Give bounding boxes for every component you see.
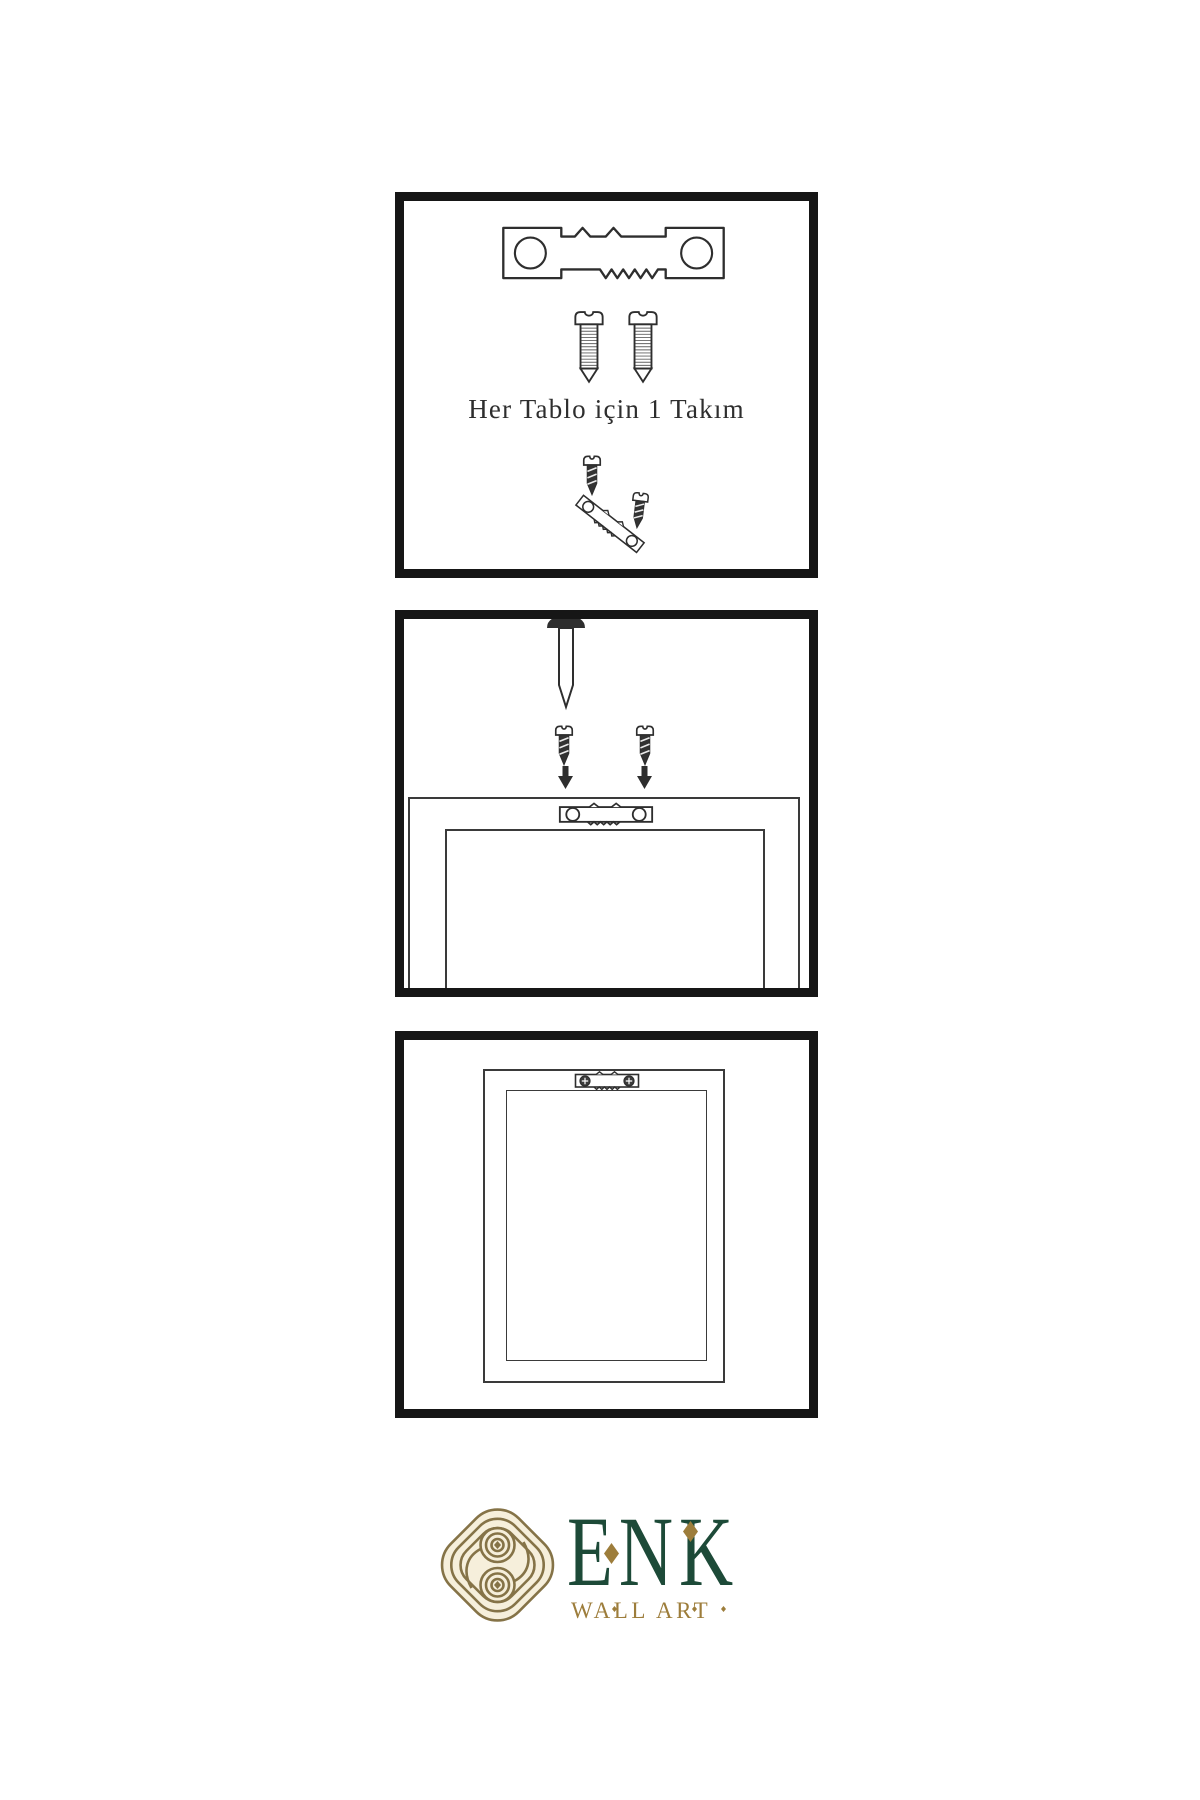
frame-back-inner-edge — [506, 1090, 707, 1361]
mounted-sawtooth-hanger-icon — [574, 1071, 640, 1091]
step-1-caption: Her Tablo için 1 Takım — [404, 394, 809, 425]
hanging-instruction-sheet: Her Tablo için 1 Takım — [0, 0, 1200, 1800]
sawtooth-hanger-icon — [555, 802, 657, 826]
screw-icon — [627, 307, 659, 385]
dark-screw-icon — [553, 723, 575, 769]
brand-name: ENK — [567, 1502, 762, 1602]
step-2-panel — [395, 610, 818, 997]
frame-back-inner-edge — [445, 829, 765, 997]
dark-screw-icon — [634, 723, 656, 769]
brand-tagline: WALL ART — [571, 1598, 711, 1624]
brand-wordmark: ENK WALL ART — [567, 1502, 827, 1632]
sawtooth-hanger-icon — [497, 224, 730, 282]
step-1-panel: Her Tablo için 1 Takım — [395, 192, 818, 578]
screw-icon — [573, 307, 605, 385]
down-arrow-icon — [558, 766, 573, 789]
enk-knot-icon — [437, 1500, 558, 1630]
wall-nail-icon — [543, 613, 589, 717]
down-arrow-icon — [637, 766, 652, 789]
dark-screw-icon — [627, 489, 652, 533]
hanger-assembly-illustration — [404, 441, 809, 569]
step-3-panel — [395, 1031, 818, 1418]
